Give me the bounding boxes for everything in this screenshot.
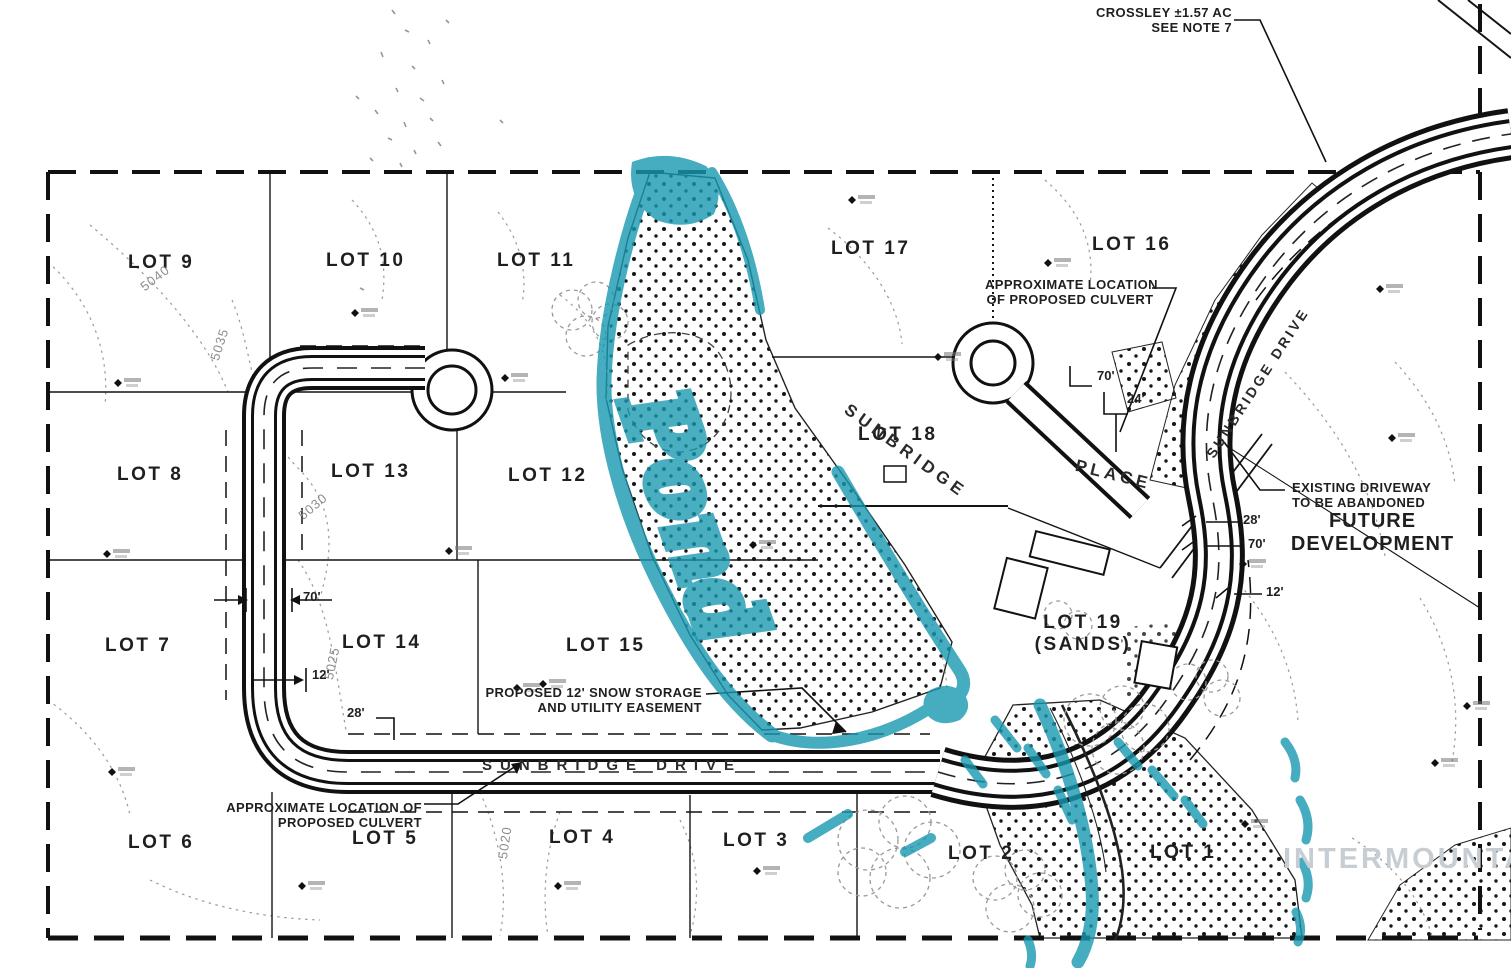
lot-label-4: LOT 4 bbox=[549, 827, 615, 849]
culvert-top-line1: APPROXIMATE LOCATION bbox=[985, 278, 1155, 293]
intermountain-watermark: INTERMOUNTAIN bbox=[1283, 843, 1511, 876]
snow-line2: AND UTILITY EASEMENT bbox=[462, 701, 702, 716]
lot-19-owner: (SANDS) bbox=[1018, 634, 1148, 656]
dim-28-right: 28' bbox=[1243, 513, 1261, 528]
future-line2: DEVELOPMENT bbox=[1280, 533, 1465, 556]
lot-label-19: LOT 19 (SANDS) bbox=[1018, 612, 1148, 656]
crossley-note: CROSSLEY ±1.57 AC SEE NOTE 7 bbox=[1070, 6, 1232, 36]
culvert-top-line2: OF PROPOSED CULVERT bbox=[985, 293, 1155, 308]
lot-label-17: LOT 17 bbox=[831, 238, 910, 260]
culvert-note-top: APPROXIMATE LOCATION OF PROPOSED CULVERT bbox=[985, 278, 1155, 308]
lot-label-6: LOT 6 bbox=[128, 832, 194, 854]
future-line1: FUTURE bbox=[1280, 510, 1465, 533]
future-development-label: FUTURE DEVELOPMENT bbox=[1280, 510, 1465, 556]
plat-map: LOT 9 LOT 10 LOT 11 LOT 17 LOT 16 LOT 8 … bbox=[0, 0, 1511, 968]
lot-label-14: LOT 14 bbox=[342, 632, 421, 654]
lot-label-13: LOT 13 bbox=[331, 461, 410, 483]
lot-label-1: LOT 1 bbox=[1150, 842, 1216, 864]
dim-70-place: 70' bbox=[1097, 369, 1115, 384]
snow-storage-note: PROPOSED 12' SNOW STORAGE AND UTILITY EA… bbox=[462, 686, 702, 716]
dim-70-left: 70' bbox=[303, 590, 321, 605]
dim-24-place: 24' bbox=[1127, 392, 1145, 407]
lot-label-10: LOT 10 bbox=[326, 250, 405, 272]
driveway-line2: TO BE ABANDONED bbox=[1292, 496, 1431, 511]
driveway-note: EXISTING DRIVEWAY TO BE ABANDONED bbox=[1292, 481, 1431, 511]
lot-label-12: LOT 12 bbox=[508, 465, 587, 487]
lot-label-2: LOT 2 bbox=[948, 843, 1014, 865]
lot-19-number: LOT 19 bbox=[1018, 612, 1148, 634]
lot-label-3: LOT 3 bbox=[723, 830, 789, 852]
lot-label-16: LOT 16 bbox=[1092, 234, 1171, 256]
road-label-sunbridge-drive-bottom: SUNBRIDGE DRIVE bbox=[482, 757, 742, 774]
snow-line1: PROPOSED 12' SNOW STORAGE bbox=[462, 686, 702, 701]
lot-label-8: LOT 8 bbox=[117, 464, 183, 486]
lot-label-11: LOT 11 bbox=[497, 250, 575, 272]
dim-70-right: 70' bbox=[1248, 537, 1266, 552]
lot-label-15: LOT 15 bbox=[566, 635, 645, 657]
crossley-see-note: SEE NOTE 7 bbox=[1070, 21, 1232, 36]
crossley-acreage: CROSSLEY ±1.57 AC bbox=[1070, 6, 1232, 21]
driveway-line1: EXISTING DRIVEWAY bbox=[1292, 481, 1431, 496]
lot-label-5: LOT 5 bbox=[352, 828, 418, 850]
dim-28-left: 28' bbox=[347, 706, 365, 721]
lot-label-7: LOT 7 bbox=[105, 635, 171, 657]
culvert-bottom-line2: PROPOSED CULVERT bbox=[212, 816, 422, 831]
culvert-bottom-line1: APPROXIMATE LOCATION OF bbox=[212, 801, 422, 816]
dim-12-right: 12' bbox=[1266, 585, 1284, 600]
scan-noise bbox=[356, 10, 503, 290]
culvert-note-bottom: APPROXIMATE LOCATION OF PROPOSED CULVERT bbox=[212, 801, 422, 831]
